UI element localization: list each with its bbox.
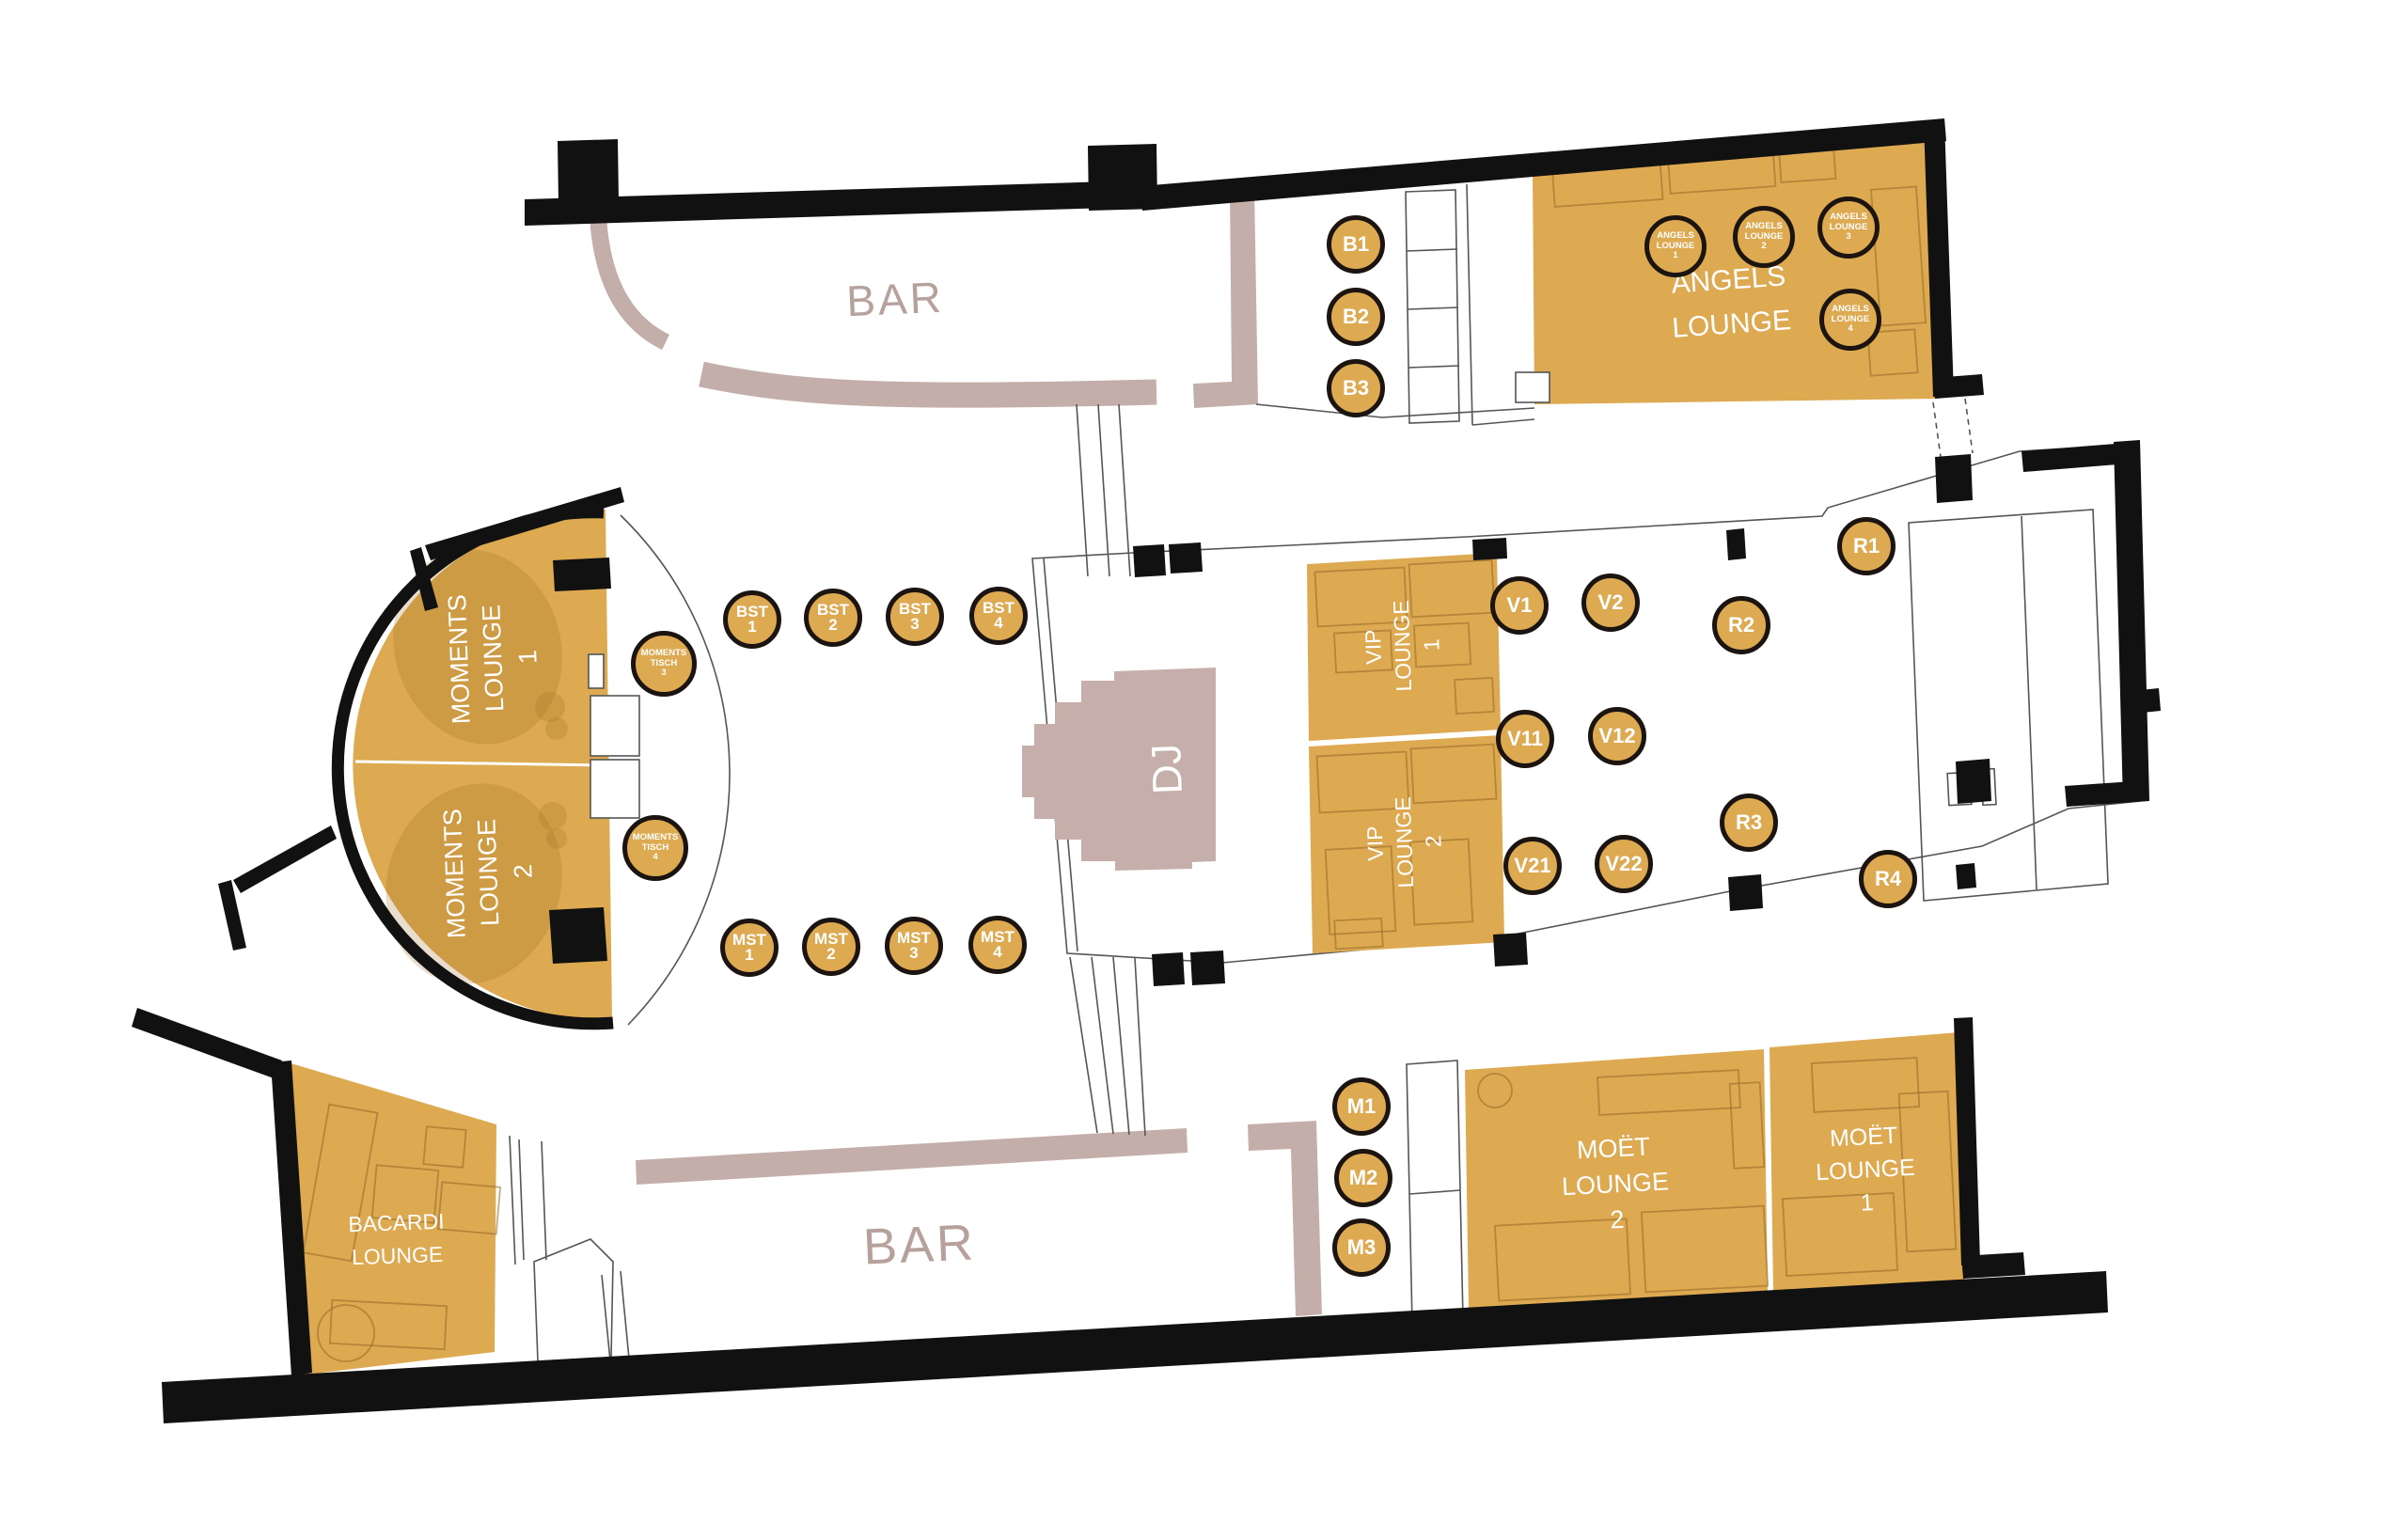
floorplan-graphics (0, 0, 2407, 1540)
table-bst1[interactable]: BST1 (723, 590, 781, 649)
table-angels-lounge2[interactable]: ANGELSLOUNGE2 (1733, 206, 1795, 268)
bar-bottom-counter-corner (1248, 1121, 1322, 1316)
table-v11[interactable]: V11 (1496, 710, 1554, 768)
dj-label: DJ (1143, 743, 1192, 794)
table-r3[interactable]: R3 (1720, 794, 1778, 852)
bar-bottom-label: BAR (862, 1213, 978, 1276)
table-mst1[interactable]: MST1 (720, 919, 779, 977)
table-v1[interactable]: V1 (1490, 576, 1549, 635)
table-moments-tisch4[interactable]: MOMENTSTISCH4 (622, 815, 688, 881)
table-r4[interactable]: R4 (1859, 850, 1917, 908)
table-mst3[interactable]: MST3 (885, 917, 943, 975)
lounge-moet1-label: MOËT LOUNGE 1 (1814, 1119, 1918, 1222)
table-angels-lounge3[interactable]: ANGELSLOUNGE3 (1817, 196, 1880, 259)
table-bst4[interactable]: BST4 (969, 587, 1028, 645)
table-v22[interactable]: V22 (1595, 835, 1653, 893)
table-v12[interactable]: V12 (1588, 707, 1646, 765)
table-m2[interactable]: M2 (1334, 1149, 1392, 1207)
table-mst2[interactable]: MST2 (802, 918, 860, 976)
table-angels-lounge1[interactable]: ANGELSLOUNGE1 (1644, 215, 1707, 277)
lounge-moments2-label: MOMENTS LOUNGE 2 (435, 806, 543, 939)
table-angels-lounge4[interactable]: ANGELSLOUNGE4 (1819, 289, 1881, 351)
lounge-bacardi-label: BACARDI LOUNGE (348, 1205, 447, 1274)
table-v2[interactable]: V2 (1581, 574, 1640, 632)
entry-door-arc (598, 216, 666, 342)
table-bst3[interactable]: BST3 (886, 588, 944, 646)
bar-bottom-counter (636, 1128, 1188, 1185)
table-v21[interactable]: V21 (1503, 837, 1562, 895)
bar-top-label: BAR (845, 272, 945, 326)
table-b3[interactable]: B3 (1327, 359, 1385, 417)
lounge-vip2-label: VIP LOUNGE 2 (1360, 795, 1450, 889)
table-b2[interactable]: B2 (1327, 288, 1385, 346)
lounge-moments1-label: MOMENTS LOUNGE 1 (440, 591, 547, 725)
table-m1[interactable]: M1 (1332, 1077, 1391, 1136)
table-m3[interactable]: M3 (1332, 1218, 1391, 1277)
table-r1[interactable]: R1 (1837, 517, 1896, 575)
lounge-moet2-label: MOËT LOUNGE 2 (1559, 1128, 1672, 1240)
table-mst4[interactable]: MST4 (968, 916, 1027, 974)
bar-top-counter-corner (1193, 186, 1258, 408)
bar-top-counter (701, 374, 1156, 395)
table-b1[interactable]: B1 (1327, 215, 1385, 274)
table-bst2[interactable]: BST2 (804, 589, 862, 647)
club-floorplan: BAR BAR DJ ANGELS LOUNGE MOMENTS LOUNGE … (0, 0, 2407, 1540)
lounge-vip1-label: VIP LOUNGE 1 (1358, 599, 1448, 693)
table-moments-tisch3[interactable]: MOMENTSTISCH3 (631, 631, 697, 697)
table-r2[interactable]: R2 (1712, 596, 1770, 654)
